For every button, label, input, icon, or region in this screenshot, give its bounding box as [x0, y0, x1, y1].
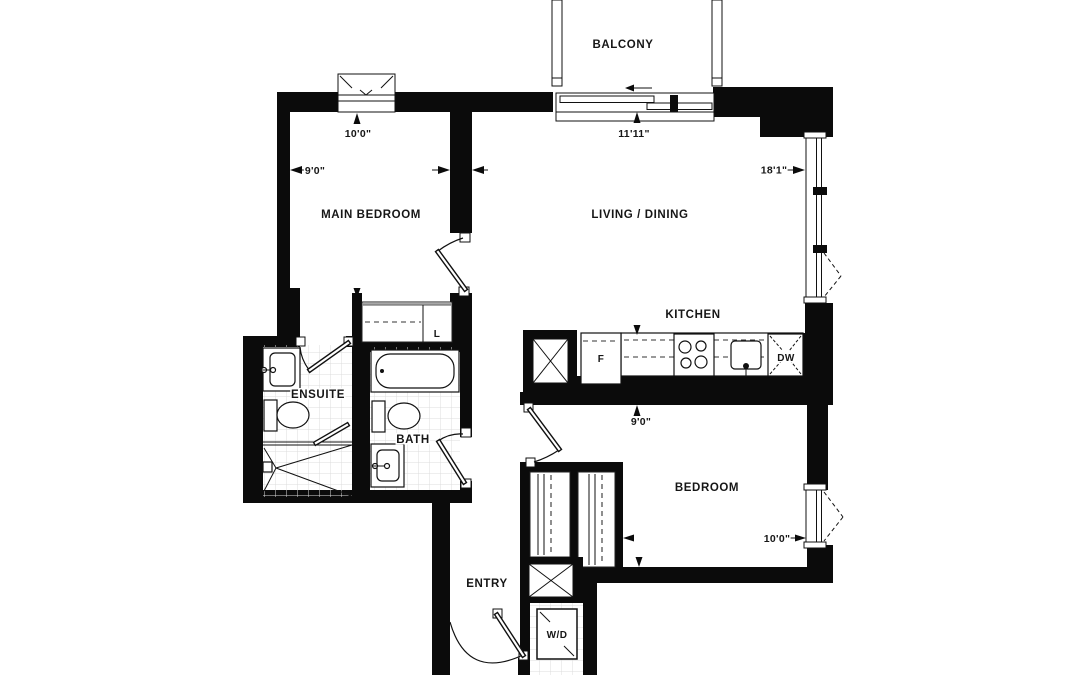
bathtub-icon [371, 350, 459, 392]
living-dining-label: LIVING / DINING [591, 209, 688, 221]
bath-vanity-icon [371, 444, 404, 487]
dim-living-depth: 11'11" [618, 128, 649, 140]
kitchen-label: KITCHEN [665, 309, 720, 321]
bedroom-label: BEDROOM [675, 482, 739, 494]
hall-closet [530, 472, 570, 557]
balcony-label: BALCONY [592, 39, 653, 51]
main-bedroom-door [438, 233, 470, 296]
floor-plan-canvas: F DW [0, 0, 1080, 675]
linen-label: L [434, 329, 441, 340]
dim-bedroom-depth: 9'0" [631, 416, 651, 428]
bedroom-window [804, 484, 843, 548]
bath-toilet-icon [372, 401, 420, 432]
dim-living-width: 18'1" [761, 165, 788, 177]
bedroom-closet [578, 472, 615, 567]
hall-door [524, 403, 559, 467]
bath-label: BATH [396, 434, 430, 446]
dishwasher: DW [768, 334, 803, 376]
ensuite-label: ENSUITE [291, 389, 345, 401]
balcony-rail-left [552, 0, 562, 86]
main-bedroom-label: MAIN BEDROOM [321, 209, 421, 221]
fridge: F [581, 333, 621, 384]
main-bedroom-window [338, 74, 395, 112]
floor-plan: F DW [0, 0, 1080, 675]
balcony-structure [552, 0, 722, 121]
dishwasher-label: DW [777, 353, 795, 364]
balcony-sliding-door [556, 85, 714, 122]
kitchen-shaft [523, 330, 577, 392]
ensuite-vanity-icon [260, 348, 300, 391]
fridge-label: F [598, 354, 605, 365]
washer-dryer-label: W/D [547, 630, 568, 641]
stove-icon [674, 334, 714, 376]
main-bedroom-closet: L [362, 302, 452, 342]
entry-shaft [520, 557, 583, 603]
slider-direction-arrow [625, 85, 634, 92]
dim-main-bedroom-depth: 10'0" [345, 128, 372, 140]
washer-dryer: W/D [537, 609, 577, 659]
living-window [804, 132, 841, 303]
dim-main-bedroom-width: 9'0" [305, 165, 325, 177]
balcony-rail-right [712, 0, 722, 86]
entry-label: ENTRY [466, 578, 508, 590]
dim-bedroom-width: 10'0" [764, 533, 791, 545]
entry-door [450, 609, 528, 663]
